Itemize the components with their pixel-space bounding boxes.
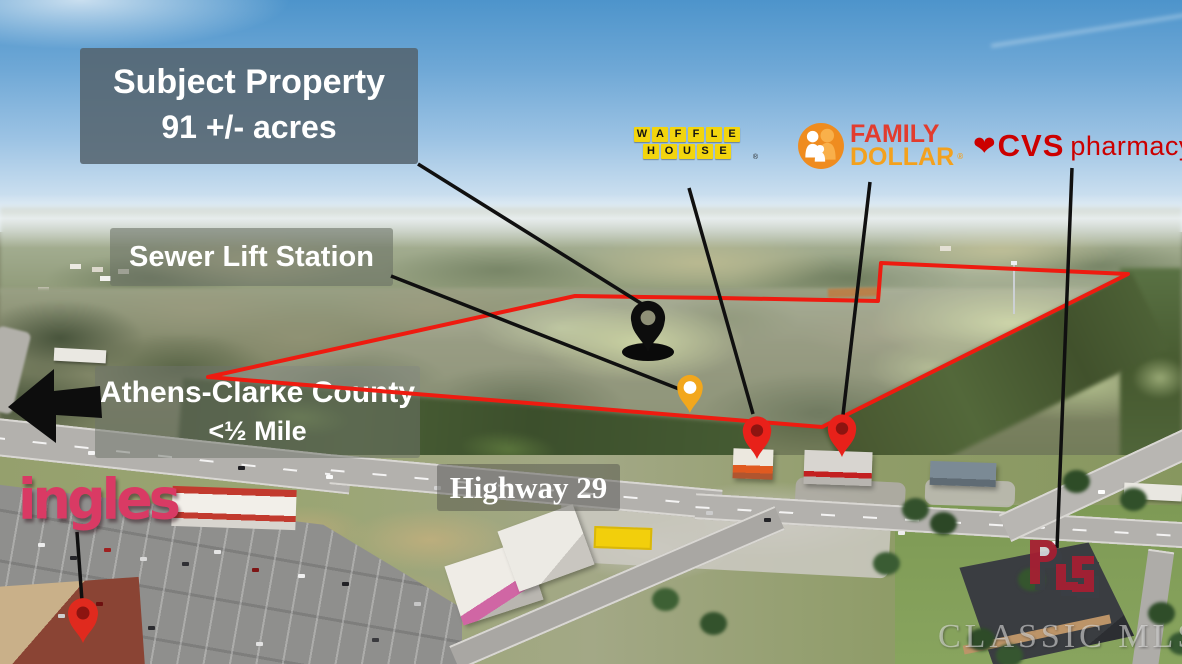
small-canopy <box>1124 482 1182 501</box>
classic-mls-text: CLASSIC MLS <box>938 618 1182 656</box>
restaurant-building <box>732 448 773 479</box>
warehouse-roof <box>54 348 107 364</box>
sewer-lift-station-label: Sewer Lift Station <box>110 228 393 286</box>
family-dollar-word2: DOLLAR® <box>850 146 954 169</box>
subject-property-title: Subject Property <box>80 60 418 104</box>
family-dollar-registered-mark: ® <box>957 145 963 168</box>
classic-mls-watermark: CLASSIC MLS <box>938 538 1182 664</box>
waffle-house-logo: WAFFLE HOUSE ® <box>634 127 754 159</box>
pls-logo-icon <box>1026 538 1102 618</box>
yellow-gas-canopy <box>594 526 653 550</box>
family-dollar-building <box>803 450 872 486</box>
foreground-trees <box>0 0 27 23</box>
athens-clarke-county-label: Athens-Clarke County <½ Mile <box>95 366 420 458</box>
aerial-property-photo: Subject Property 91 +/- acres Sewer Lift… <box>0 0 1182 664</box>
waffle-house-word1: WAFFLE <box>634 127 754 142</box>
athens-clarke-county-text: Athens-Clarke County <box>95 374 420 412</box>
athens-distance-text: <½ Mile <box>95 412 420 450</box>
ingles-store-building <box>0 577 145 664</box>
waffle-house-word2: HOUSE <box>643 144 754 159</box>
waffle-house-registered-mark: ® <box>753 154 758 161</box>
ingles-gas-canopy <box>171 486 296 530</box>
cvs-pharmacy-text: pharmacy <box>1070 131 1182 162</box>
highway-29-label: Highway 29 <box>437 464 620 511</box>
cvs-heart-icon: ❤ <box>973 131 996 161</box>
distant-roofs <box>828 287 880 298</box>
metal-roof-store <box>930 461 997 487</box>
ingles-logo: ingles <box>18 467 177 533</box>
cvs-pharmacy-logo: ❤ CVS pharmacy ® <box>973 128 1182 164</box>
cell-tower <box>1013 264 1015 314</box>
family-dollar-figures-icon <box>797 122 845 170</box>
subject-property-acreage: 91 +/- acres <box>80 104 418 150</box>
cvs-wordmark: CVS <box>998 128 1065 164</box>
subject-property-label: Subject Property 91 +/- acres <box>80 48 418 164</box>
family-dollar-logo: FAMILY DOLLAR® <box>797 122 954 170</box>
